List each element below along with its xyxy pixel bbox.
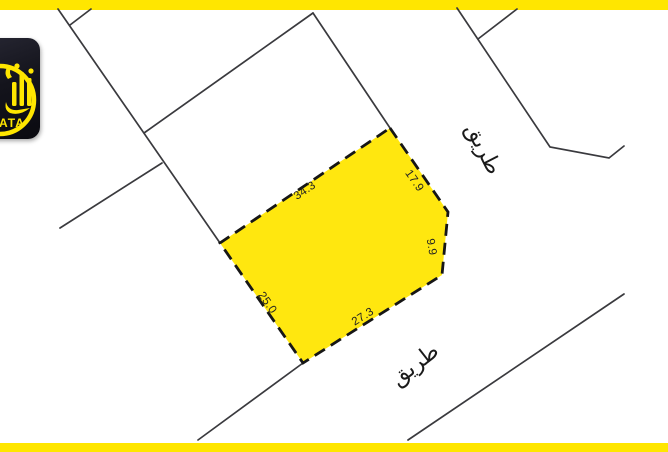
logo-text: ATA [0,116,25,130]
highlighted-plot-polygon [220,128,448,363]
cadastral-map [0,0,668,452]
plot-map-image: 34.3 17.9 9.9 27.3 25.0 طريق طريق ATA [0,0,668,452]
road-edge-line [408,294,624,440]
parcel-boundary-line [144,13,313,133]
company-logo: ATA [0,38,40,139]
parcel-boundary-line [60,163,162,228]
parcel-boundary-line [313,13,390,128]
road-edge-line [198,363,303,440]
parcel-boundary-spur [70,9,91,25]
parcel-boundary-line [58,9,220,243]
parcel-boundary-spur [478,9,517,39]
